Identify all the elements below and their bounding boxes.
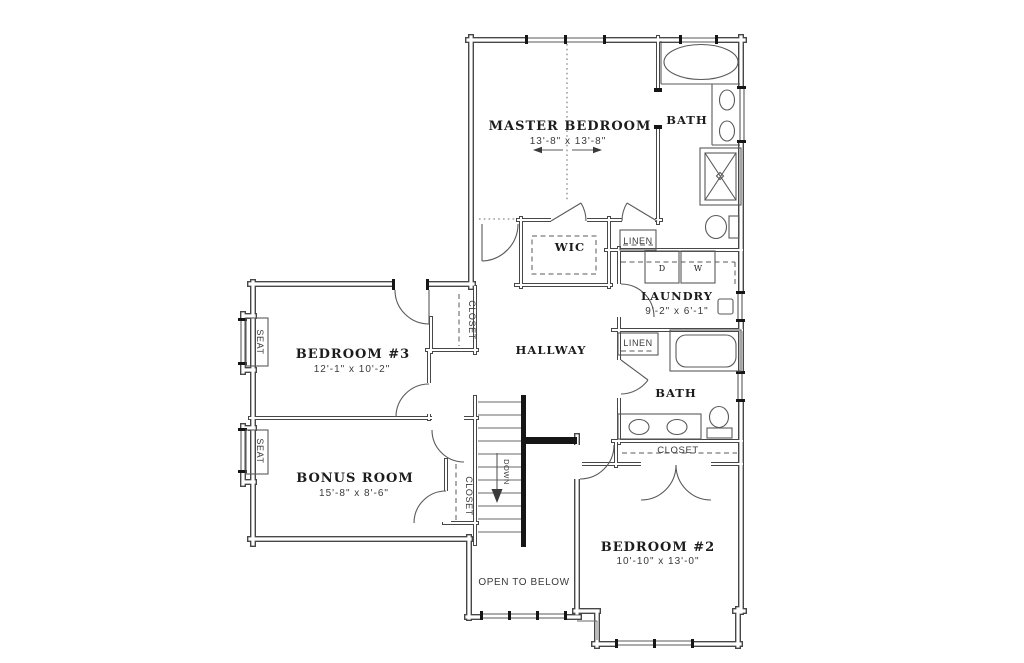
room-label-master-bath: BATH bbox=[666, 113, 707, 127]
floor-plan-canvas: MASTER BEDROOM 13'-8" x 13'-8" BATH WIC … bbox=[0, 0, 1024, 663]
stair-stringer bbox=[521, 395, 526, 547]
master-toilet bbox=[706, 216, 740, 239]
bath2-tub bbox=[670, 330, 741, 371]
label-open-to-below: OPEN TO BELOW bbox=[478, 577, 569, 588]
label-seat-bonus: SEAT bbox=[255, 438, 265, 463]
dim-laundry: 9'-2" x 6'-1" bbox=[645, 306, 708, 317]
bath2-door bbox=[621, 360, 648, 394]
label-linen-master: LINEN bbox=[623, 236, 653, 246]
dim-bedroom2: 10'-10" x 13'-0" bbox=[616, 556, 699, 567]
laundry-chute bbox=[718, 299, 733, 314]
bath2-vanity bbox=[618, 414, 701, 439]
half-wall bbox=[526, 437, 577, 444]
label-washer: W bbox=[694, 264, 703, 273]
floor-plan-drawing: MASTER BEDROOM 13'-8" x 13'-8" BATH WIC … bbox=[0, 0, 1024, 663]
bedroom3-closet-door bbox=[395, 290, 429, 324]
dim-bonus-room: 15'-8" x 8'-6" bbox=[319, 488, 389, 499]
bath2-toilet bbox=[707, 407, 732, 439]
master-tub bbox=[661, 41, 740, 84]
room-label-bath2: BATH bbox=[655, 386, 696, 400]
room-label-hallway: HALLWAY bbox=[516, 343, 587, 357]
label-closet-bedroom3: CLOSET bbox=[467, 300, 477, 340]
dim-bedroom3: 12'-1" x 10'-2" bbox=[314, 364, 391, 375]
label-dryer: D bbox=[659, 264, 665, 273]
label-closet-bedroom2: CLOSET bbox=[657, 445, 699, 456]
master-vanity bbox=[712, 84, 740, 145]
bonus-entry-door bbox=[432, 430, 464, 462]
master-bedroom-door bbox=[482, 224, 518, 261]
staircase bbox=[478, 395, 577, 547]
room-label-master-bedroom: MASTER BEDROOM bbox=[489, 119, 652, 134]
shower bbox=[700, 148, 741, 205]
room-label-bonus-room: BONUS ROOM bbox=[296, 471, 414, 486]
room-label-laundry: LAUNDRY bbox=[641, 289, 713, 303]
label-linen-hall: LINEN bbox=[623, 338, 653, 348]
label-closet-bonus: CLOSET bbox=[464, 476, 474, 516]
label-seat-bedroom3: SEAT bbox=[255, 329, 265, 354]
bedroom2-closet-doors bbox=[641, 465, 711, 500]
label-down: DOWN bbox=[502, 459, 511, 485]
down-arrow bbox=[492, 453, 503, 503]
room-label-wic: WIC bbox=[554, 240, 585, 254]
room-label-bedroom3: BEDROOM #3 bbox=[296, 347, 410, 362]
fixtures bbox=[246, 41, 741, 474]
dim-master-bedroom: 13'-8" x 13'-8" bbox=[530, 136, 607, 147]
room-label-bedroom2: BEDROOM #2 bbox=[601, 540, 715, 555]
